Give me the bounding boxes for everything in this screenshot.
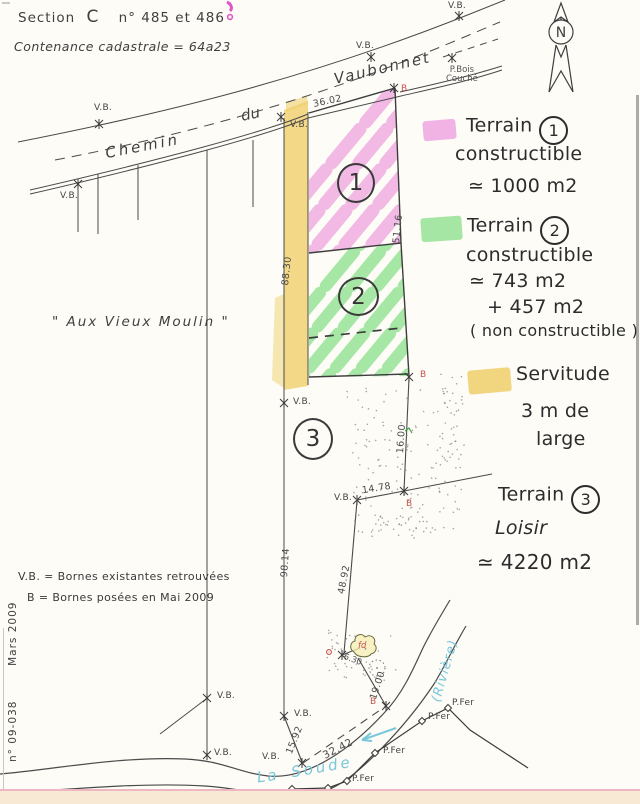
terrain3-title: Terrain3: [498, 485, 600, 514]
measurement: 98.14: [280, 548, 292, 578]
b-label: B: [406, 500, 412, 509]
road-name-du: du: [240, 105, 262, 124]
terrain2-line2: constructible: [466, 246, 593, 265]
servitude-line3: large: [536, 430, 586, 449]
stipple-texture: [327, 374, 465, 682]
fd-label: fd: [358, 642, 366, 651]
terrain3-line2: Loisir: [495, 519, 547, 538]
terrain2-circled-number: 2: [540, 216, 569, 245]
terrain2-note: ( non constructible ): [470, 323, 638, 339]
b-label: B: [401, 85, 407, 94]
green-swatch: [420, 216, 463, 243]
parcel-2-digit: 2: [351, 284, 366, 310]
terrain2-area2: + 457 m2: [487, 298, 584, 317]
vb-label: V.B.: [293, 398, 311, 407]
road-lines: [18, 0, 505, 194]
pfer-label: P.Fer: [428, 713, 450, 722]
vb-label: V.B.: [448, 2, 466, 11]
terrain1-area: ≃ 1000 m2: [468, 177, 578, 196]
iron-post-marker: [419, 718, 426, 725]
terrain2-word: Terrain: [467, 215, 533, 237]
survey-markers: [74, 11, 463, 768]
legend-line2: B = Bornes posées en Mai 2009: [27, 592, 214, 603]
place-name: " Aux Vieux Moulin ": [52, 316, 230, 330]
doc-date: Mars 2009: [7, 602, 19, 666]
pink-swatch: [422, 119, 457, 142]
parcel-1-digit: 1: [349, 170, 364, 196]
vb-label: V.B.: [356, 42, 374, 51]
pbois-label: P.Bois Couché: [446, 66, 478, 83]
terrain1-title: Terrain1: [466, 116, 568, 145]
section-label: Section: [18, 10, 75, 26]
servitude-strip: [272, 96, 308, 390]
b-label: B: [420, 371, 426, 380]
vb-label: V.B.: [262, 753, 280, 762]
parcel-3-number: 3: [293, 418, 333, 460]
parcel-2-number: 2: [338, 277, 379, 316]
bottom-scan-band: [0, 789, 640, 804]
vb-label: V.B.: [94, 104, 112, 113]
terrain1-word: Terrain: [466, 115, 532, 137]
north-letter: N: [556, 25, 566, 41]
red-point-icon: [327, 650, 332, 655]
terrain3-area: ≃ 4220 m2: [477, 552, 592, 572]
servitude-line2: 3 m de: [521, 402, 589, 421]
pfer-label: P.Fer: [452, 699, 474, 708]
yellow-swatch: [467, 367, 512, 395]
cadastral-plan-page: N Section C n° 485 et 486 Contenance cad…: [0, 0, 640, 804]
pfer-label: P.Fer: [383, 747, 405, 756]
terrain3-circled-number: 3: [571, 485, 600, 514]
vb-label: V.B.: [334, 494, 352, 503]
vb-label: V.B.: [217, 692, 235, 701]
measurement: 16.00: [396, 424, 408, 454]
terrain1-line2: constructible: [455, 145, 582, 164]
river-name-la: La: [256, 768, 279, 786]
pfer-label: P.Fer: [352, 775, 374, 784]
pbois-line2: Couché: [446, 74, 478, 84]
vb-label: V.B.: [290, 121, 308, 130]
pink-scribble: [227, 2, 232, 19]
section-title: Section C n° 485 et 486: [18, 9, 225, 26]
boundary-lines: [78, 112, 308, 756]
paper-edge-line: [3, 628, 4, 790]
parcel-3-digit: 3: [306, 426, 321, 452]
terrain2-title: Terrain2: [467, 216, 569, 245]
servitude-line1: Servitude: [516, 365, 610, 384]
legend-line1: V.B. = Bornes existantes retrouvées: [18, 571, 230, 582]
parcel-1-number: 1: [337, 163, 375, 203]
vb-label: V.B.: [214, 749, 232, 758]
scan-edge-shadow: [636, 95, 639, 625]
vb-label: V.B.: [60, 192, 78, 201]
terrain3-word: Terrain: [498, 484, 564, 506]
terrain2-area: ≃ 743 m2: [469, 272, 566, 291]
vb-label: V.B.: [294, 710, 312, 719]
section-value: C: [86, 7, 99, 27]
document-reference: n° 09-038 Mars 2009: [8, 602, 19, 762]
b-label: B: [370, 698, 376, 707]
contenance-text: Contenance cadastrale = 64a23: [14, 41, 231, 54]
north-arrow-icon: [549, 3, 573, 92]
parcel-numbers: n° 485 et 486: [119, 10, 225, 26]
doc-number: n° 09-038: [7, 701, 19, 762]
terrain1-circled-number: 1: [539, 116, 568, 145]
